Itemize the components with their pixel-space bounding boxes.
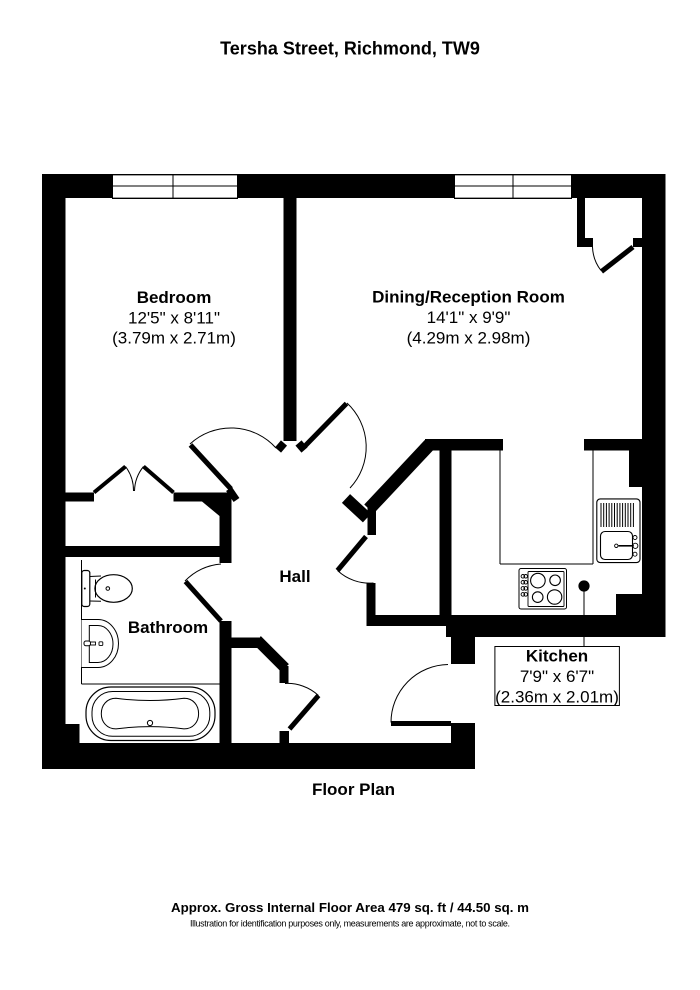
svg-text:Illustration for identificatio: Illustration for identification purposes…	[190, 919, 510, 929]
svg-text:(4.29m x 2.98m): (4.29m x 2.98m)	[407, 329, 531, 348]
svg-text:(3.79m x 2.71m): (3.79m x 2.71m)	[112, 329, 236, 348]
svg-text:14'1" x 9'9": 14'1" x 9'9"	[427, 308, 511, 327]
svg-text:12'5" x 8'11": 12'5" x 8'11"	[128, 309, 220, 328]
svg-text:(2.36m x 2.01m): (2.36m x 2.01m)	[495, 688, 619, 707]
svg-text:Floor Plan: Floor Plan	[312, 780, 395, 799]
svg-text:Bedroom: Bedroom	[137, 288, 212, 307]
svg-text:Kitchen: Kitchen	[526, 647, 588, 666]
svg-text:Dining/Reception Room: Dining/Reception Room	[372, 288, 565, 307]
svg-text:Tersha Street, Richmond, TW9: Tersha Street, Richmond, TW9	[220, 39, 480, 59]
svg-text:7'9" x 6'7": 7'9" x 6'7"	[520, 667, 594, 686]
svg-text:Approx. Gross Internal Floor A: Approx. Gross Internal Floor Area 479 sq…	[171, 900, 529, 915]
svg-text:Bathroom: Bathroom	[128, 618, 208, 637]
svg-text:Hall: Hall	[279, 567, 310, 586]
